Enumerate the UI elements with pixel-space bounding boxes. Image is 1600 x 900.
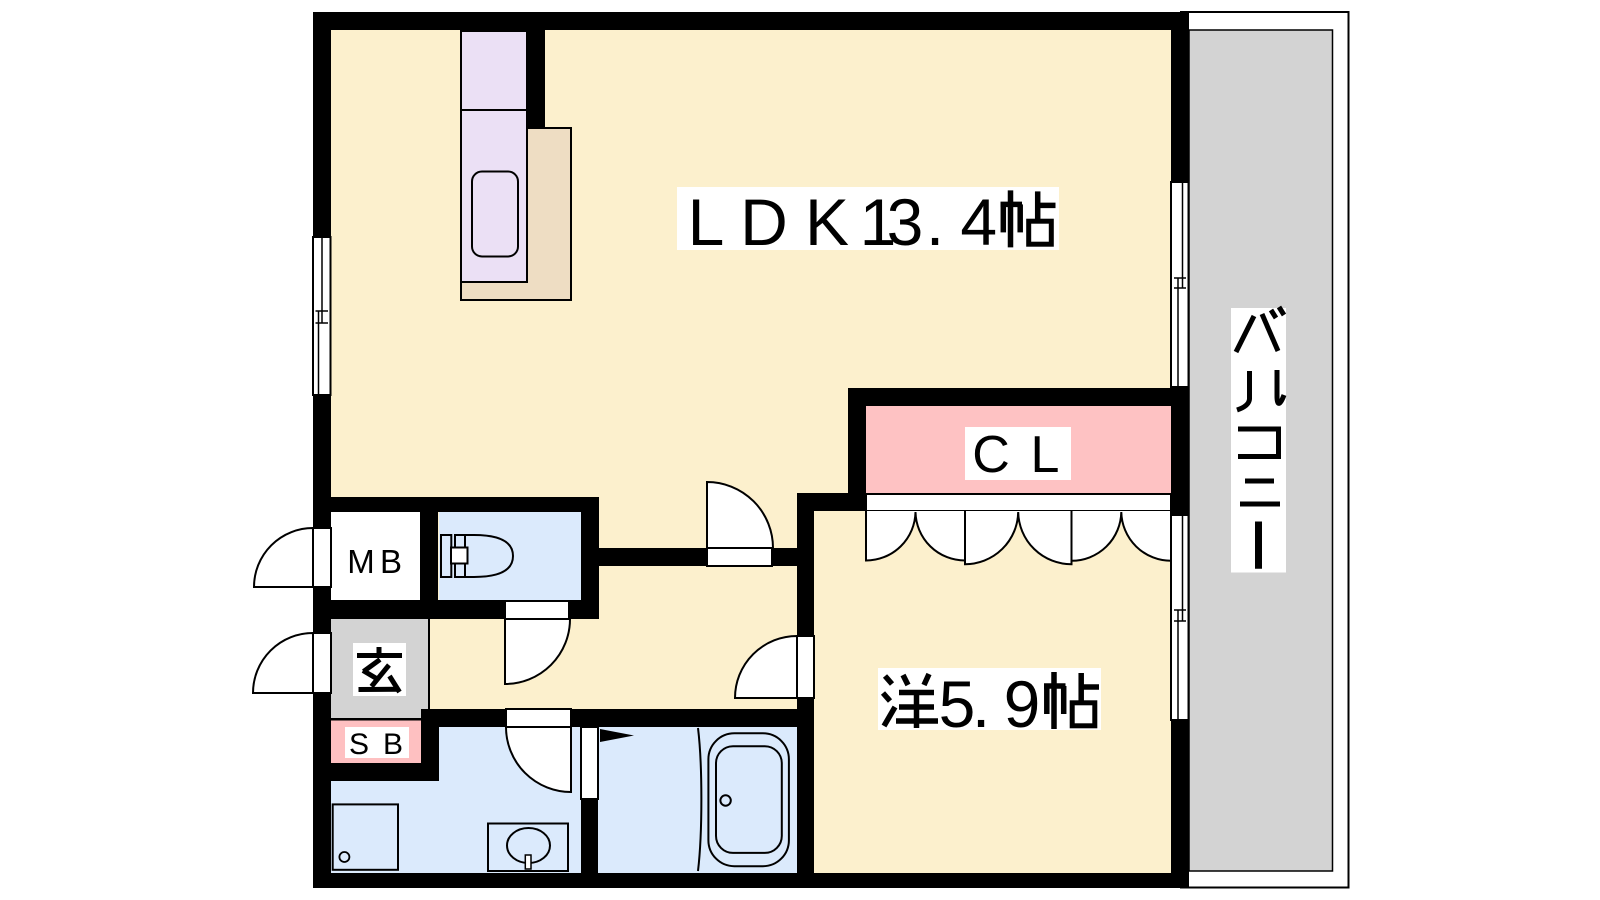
svg-text:L: L <box>688 185 725 259</box>
svg-text:M: M <box>347 543 375 580</box>
svg-text:L: L <box>1031 426 1060 484</box>
svg-text:5: 5 <box>939 667 976 741</box>
svg-text:K: K <box>805 185 849 259</box>
svg-text:B: B <box>380 543 402 580</box>
svg-text:4: 4 <box>960 185 997 259</box>
svg-text:9: 9 <box>1004 667 1041 741</box>
svg-text:S: S <box>349 728 369 761</box>
svg-text:B: B <box>383 728 403 761</box>
svg-text:D: D <box>740 185 788 259</box>
svg-text:3: 3 <box>887 185 924 259</box>
svg-text:.: . <box>972 667 990 741</box>
svg-text:.: . <box>926 185 944 259</box>
svg-text:C: C <box>972 426 1010 484</box>
